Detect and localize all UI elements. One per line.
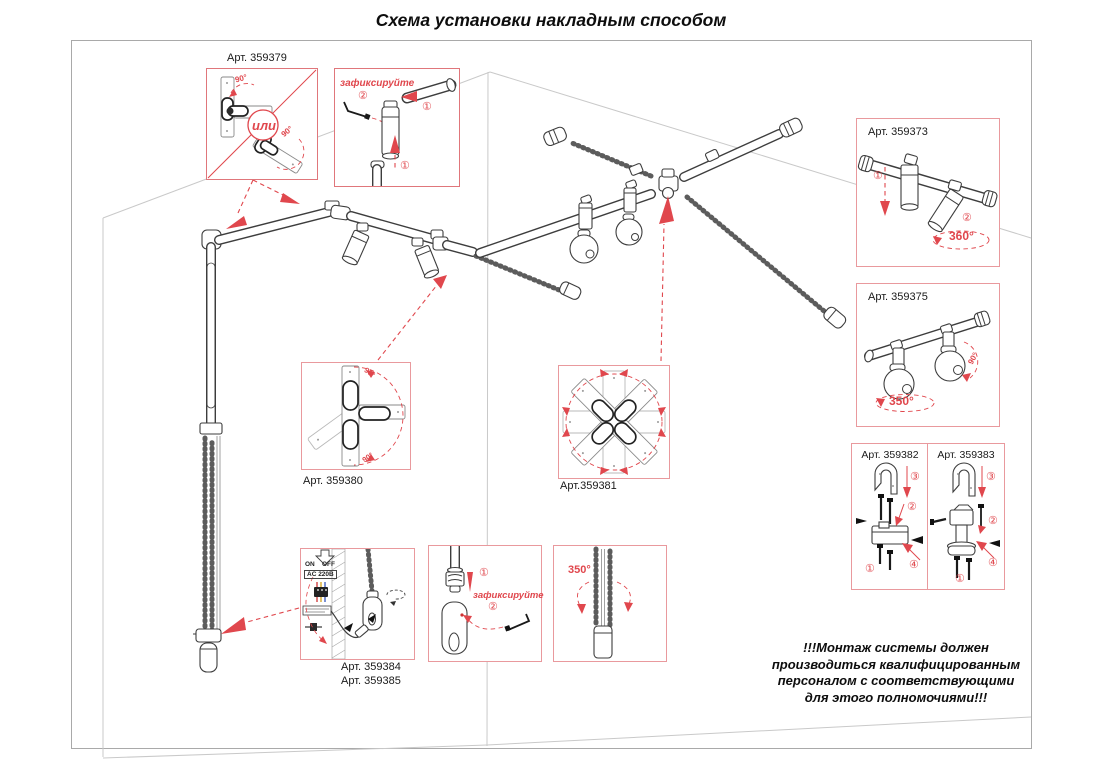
page: Схема установки накладным способом [0,0,1102,778]
off-label: OFF [322,561,335,568]
step-1: ① [865,564,875,575]
warning-line: производиться квалифицированным [758,657,1034,674]
or-text: или [252,118,276,133]
warning-line: !!!Монтаж системы должен [758,640,1034,657]
step-1: ① [873,171,883,182]
step-1: ① [479,568,489,579]
warning-line: персоналом с соответствующими [758,673,1034,690]
callout-art-359380: 90° 90° [301,362,411,470]
art-label-359383: Арт. 359383 [928,449,1004,461]
step-2: ② [988,516,998,527]
driver-label-box [303,606,331,615]
callout-art-359384-385: ON OFF AC 220В [300,548,415,660]
callout-fix-connector: зафиксируйте ② ① ① [334,68,460,187]
end-cap [200,643,217,672]
step-1: ① [955,574,965,585]
pendant-stem [624,188,636,212]
chain-hanger [368,549,372,591]
terminal-block-icon [314,587,328,597]
callout-rotation-350: 350° [553,545,667,662]
cross-rotation-drawing [559,366,669,478]
art-label-359385: Арт. 359385 [341,675,401,687]
ac-power-label: AC 220В [304,570,337,579]
callout-art-359382: Арт. 359382 ③ ② ④ ① [851,443,929,590]
callout-art-359381 [558,365,670,479]
art-label-359382: Арт. 359382 [852,449,928,461]
allen-key-icon [508,614,529,630]
ball-pendant [616,219,642,245]
step-1: ① [400,161,410,172]
step-4: ④ [909,560,919,571]
ball-pendant [570,235,598,263]
art-label-359373: Арт. 359373 [868,126,928,138]
step-4: ④ [988,558,998,569]
art-label-359381: Арт.359381 [560,480,617,492]
callout-art-359379: или 90° 90° [206,68,318,180]
rotation-350: 350° [889,394,914,408]
hook-bracket [875,463,897,494]
power-connection-drawing [301,549,414,659]
art-label-359379: Арт. 359379 [227,52,287,64]
cross-plate-drawing [302,363,410,469]
step-2: ② [962,213,972,224]
callout-art-359383: Арт. 359383 ③ ② ④ ① [927,443,1005,590]
rotation-350: 350° [568,564,591,576]
end-clamp [196,629,221,642]
endcap-fix-drawing [429,546,541,661]
step-1: ① [422,102,432,113]
track-cross-assembly [480,117,848,330]
rotate-icon [387,590,405,599]
chain-arm [476,256,564,292]
art-label-359384: Арт. 359384 [341,661,401,673]
rotation-360: 360° [949,229,974,243]
art-label-359380: Арт. 359380 [303,475,363,487]
warning-text: !!!Монтаж системы должен производиться к… [758,640,1034,706]
callout-art-359375: Арт. 359375 350° 90° [856,283,1000,427]
fix-caption: зафиксируйте [340,78,414,89]
step-3: ③ [910,472,920,483]
step-2: ② [907,502,917,513]
callout-art-359373: Арт. 359373 ① ② 360° [856,118,1000,267]
step-2: ② [358,91,368,102]
spotlight-cylinder [341,230,369,267]
step-2: ② [488,602,498,613]
fix-caption: зафиксируйте [473,590,544,601]
hook-bracket [953,463,975,496]
art-label-359375: Арт. 359375 [868,291,928,303]
spot-track-drawing [857,119,999,266]
allen-key-icon [344,102,367,117]
on-label: ON [305,561,315,568]
end-cap-sleeve [442,602,467,654]
step-3: ③ [986,472,996,483]
callout-fix-endcap: ① зафиксируйте ② [428,545,542,662]
pendant-stem [579,203,592,229]
warning-line: для этого полномочиями!!! [758,690,1034,707]
